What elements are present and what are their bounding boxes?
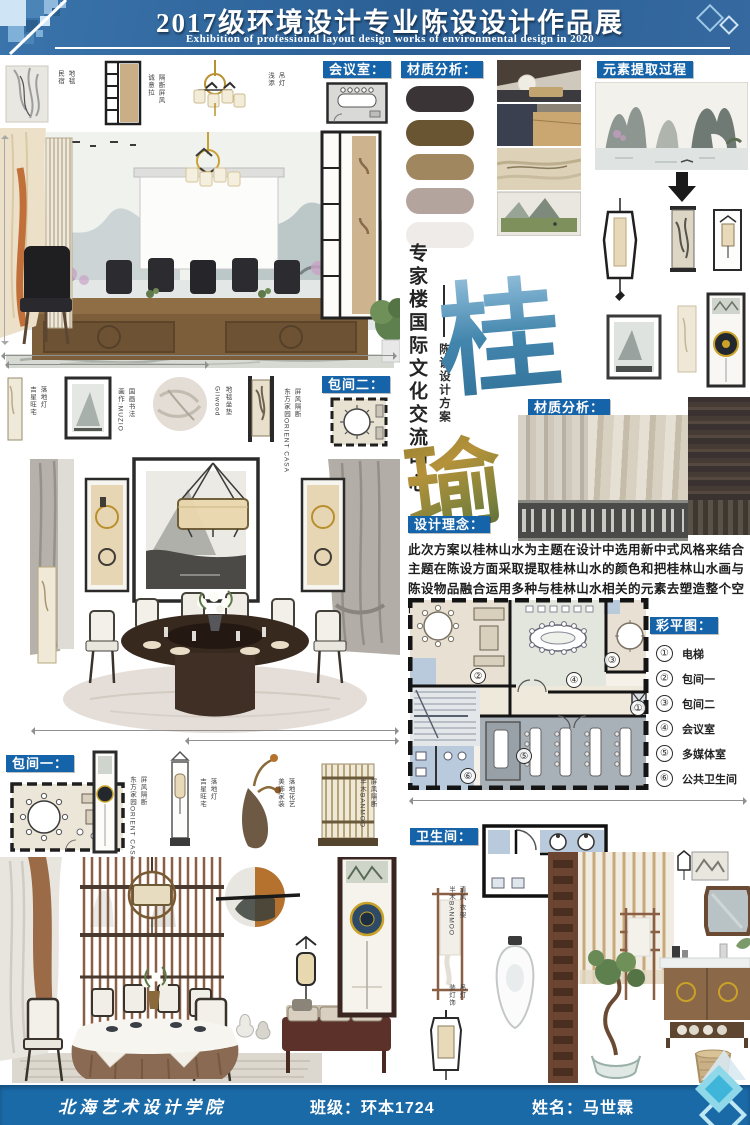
annotation-item: 落地花艺 bbox=[287, 778, 294, 808]
annotation-item: 地毯 bbox=[67, 70, 74, 85]
annotation-item: 吊灯 bbox=[458, 984, 465, 1007]
legend-label: 会议室 bbox=[682, 721, 715, 737]
annotation-item: 落地灯 bbox=[209, 778, 216, 808]
legend-number: ② bbox=[656, 670, 673, 687]
private-room-1-render bbox=[0, 857, 410, 1085]
annotation-brand: 东方家园ORIENT CASA bbox=[282, 388, 289, 458]
legend-label: 多媒体室 bbox=[682, 746, 726, 762]
fabric-wood-texture bbox=[688, 500, 750, 535]
material-swatch-4 bbox=[406, 188, 474, 214]
dining-room-render bbox=[30, 455, 400, 745]
annotation-pair: 吉星旺宅 落地灯 bbox=[28, 386, 45, 416]
section-label-material-analysis: 材质分析： bbox=[401, 61, 483, 78]
footer-bar: 北海艺术设计学院 班级：环本1724 姓名：马世霖 bbox=[0, 1085, 750, 1125]
plan-room-number: ② bbox=[470, 668, 486, 684]
section-label-design-concept: 设计理念： bbox=[408, 516, 490, 533]
fabric-stripe-texture bbox=[518, 415, 588, 500]
section-label-bathroom: 卫生间： bbox=[410, 828, 478, 845]
plan-room-number: ① bbox=[630, 700, 646, 716]
dimension-line bbox=[32, 730, 398, 731]
landscape-painting-graphic bbox=[595, 82, 748, 170]
meeting-room-render bbox=[0, 128, 400, 368]
calligraphy-char-gui: 桂 bbox=[431, 235, 568, 422]
extracted-elements-graphic bbox=[588, 198, 750, 398]
annotation-item: 国画书法 bbox=[127, 388, 134, 432]
legend-item-multimedia-room: ⑤ 多媒体室 bbox=[656, 745, 726, 762]
room2-items-graphic bbox=[0, 374, 320, 446]
greek-key-band bbox=[518, 500, 688, 541]
legend-label: 公共卫生间 bbox=[682, 771, 737, 787]
dimension-line bbox=[186, 740, 398, 741]
annotation-item: 落地灯 bbox=[39, 386, 46, 416]
annotation-brand: Gilwood bbox=[213, 386, 220, 416]
fabric-collage bbox=[518, 415, 750, 535]
legend-item-public-restroom: ⑥ 公共卫生间 bbox=[656, 770, 737, 787]
section-label-element-extraction: 元素提取过程 bbox=[597, 61, 693, 78]
header-ribbon-decoration bbox=[696, 4, 724, 32]
annotation-pair: 诚意拉 隔断屏风 bbox=[146, 74, 163, 104]
annotation-pair: 半木BANMOO 屏风隔断 bbox=[358, 778, 375, 828]
legend-number: ⑥ bbox=[656, 770, 673, 787]
header-bar: 2017级环境设计专业陈设设计作品展 Exhibition of profess… bbox=[0, 0, 750, 55]
annotation-brand: 吉星旺宅 bbox=[28, 386, 35, 416]
annotation-pair: 浅添 吊灯 bbox=[266, 72, 283, 87]
annotation-brand: 东方家园ORIENT CASA bbox=[128, 776, 135, 846]
dimension-line bbox=[2, 355, 396, 356]
annotation-item: 屏风隔断 bbox=[293, 388, 300, 458]
annotation-pair: 装灯饰 吊灯 bbox=[447, 984, 464, 1007]
material-photo-collage bbox=[497, 60, 581, 236]
annotation-pair: 半木BANMOO 清风 衣架 bbox=[447, 886, 464, 936]
material-swatch-2 bbox=[406, 120, 474, 146]
annotation-item: 屏风隔断 bbox=[139, 776, 146, 846]
annotation-brand: 半木BANMOO bbox=[358, 778, 365, 828]
plan-room-number: ④ bbox=[566, 672, 582, 688]
legend-item-meeting-room: ④ 会议室 bbox=[656, 720, 715, 737]
section-label-material-analysis-2: 材质分析： bbox=[528, 399, 610, 416]
annotation-brand: 半木BANMOO bbox=[447, 886, 454, 936]
student-name: 姓名：马世霖 bbox=[532, 1094, 634, 1118]
plan-room-number: ⑤ bbox=[516, 748, 532, 764]
legend-number: ⑤ bbox=[656, 745, 673, 762]
meeting-room-mini-plan bbox=[326, 82, 388, 124]
annotation-item: 清风 衣架 bbox=[458, 886, 465, 936]
annotation-pair: Gilwood 地毯坐垫 bbox=[213, 386, 230, 416]
section-label-private-room-2: 包间二： bbox=[322, 376, 390, 393]
annotation-pair: 民宿 地毯 bbox=[56, 70, 73, 85]
plan-room-number: ③ bbox=[604, 652, 620, 668]
legend-item-private-room-1: ② 包间一 bbox=[656, 670, 715, 687]
section-label-color-plan: 彩平图： bbox=[650, 617, 718, 634]
annotation-pair: 东方家园ORIENT CASA 屏风隔断 bbox=[282, 388, 299, 458]
annotation-brand: 装灯饰 bbox=[447, 984, 454, 1007]
legend-item-private-room-2: ③ 包间二 bbox=[656, 695, 715, 712]
fabric-curtain-texture bbox=[588, 415, 688, 500]
diamond-logo bbox=[693, 1072, 745, 1124]
legend-number: ③ bbox=[656, 695, 673, 712]
poster-subtitle: Exhibition of professional layout design… bbox=[110, 33, 670, 45]
annotation-brand: 美饰家装 bbox=[276, 778, 283, 808]
annotation-brand: 吉星旺宅 bbox=[198, 778, 205, 808]
bathroom-render bbox=[420, 850, 750, 1085]
annotation-brand: 浅添 bbox=[266, 72, 273, 87]
annotation-item: 吊灯 bbox=[277, 72, 284, 87]
annotation-brand: 民宿 bbox=[56, 70, 63, 85]
legend-label: 电梯 bbox=[682, 646, 704, 662]
private-room-2-mini-plan bbox=[330, 397, 388, 447]
annotation-brand: 诚意拉 bbox=[146, 74, 153, 104]
legend-item-elevator: ① 电梯 bbox=[656, 645, 704, 662]
annotation-pair: 美饰家装 落地花艺 bbox=[276, 778, 293, 808]
annotation-pair: 东方家园ORIENT CASA 屏风隔断 bbox=[128, 776, 145, 846]
fabric-dark-texture bbox=[688, 397, 750, 500]
legend-label: 包间一 bbox=[682, 671, 715, 687]
annotation-item: 地毯坐垫 bbox=[224, 386, 231, 416]
dimension-line bbox=[6, 364, 208, 365]
annotation-brand: 画作:MUZIO bbox=[116, 388, 123, 432]
material-swatch-3 bbox=[406, 154, 474, 180]
plan-room-number: ⑥ bbox=[460, 768, 476, 784]
dimension-line bbox=[4, 136, 5, 344]
annotation-pair: 画作:MUZIO 国画书法 bbox=[116, 388, 133, 432]
annotation-item: 屏风隔断 bbox=[369, 778, 376, 828]
header-divider bbox=[55, 47, 730, 49]
section-label-private-room-1: 包间一： bbox=[6, 755, 74, 772]
exhibition-poster: 2017级环境设计专业陈设设计作品展 Exhibition of profess… bbox=[0, 0, 750, 1125]
material-swatch-1 bbox=[406, 86, 474, 112]
annotation-item: 隔断屏风 bbox=[157, 74, 164, 104]
dimension-line bbox=[410, 800, 746, 801]
section-label-meeting-room: 会议室： bbox=[323, 61, 391, 78]
annotation-pair: 吉星旺宅 落地灯 bbox=[198, 778, 215, 808]
legend-number: ④ bbox=[656, 720, 673, 737]
legend-label: 包间二 bbox=[682, 696, 715, 712]
legend-number: ① bbox=[656, 645, 673, 662]
school-name: 北海艺术设计学院 bbox=[58, 1093, 226, 1118]
class-info: 班级：环本1724 bbox=[310, 1094, 435, 1118]
